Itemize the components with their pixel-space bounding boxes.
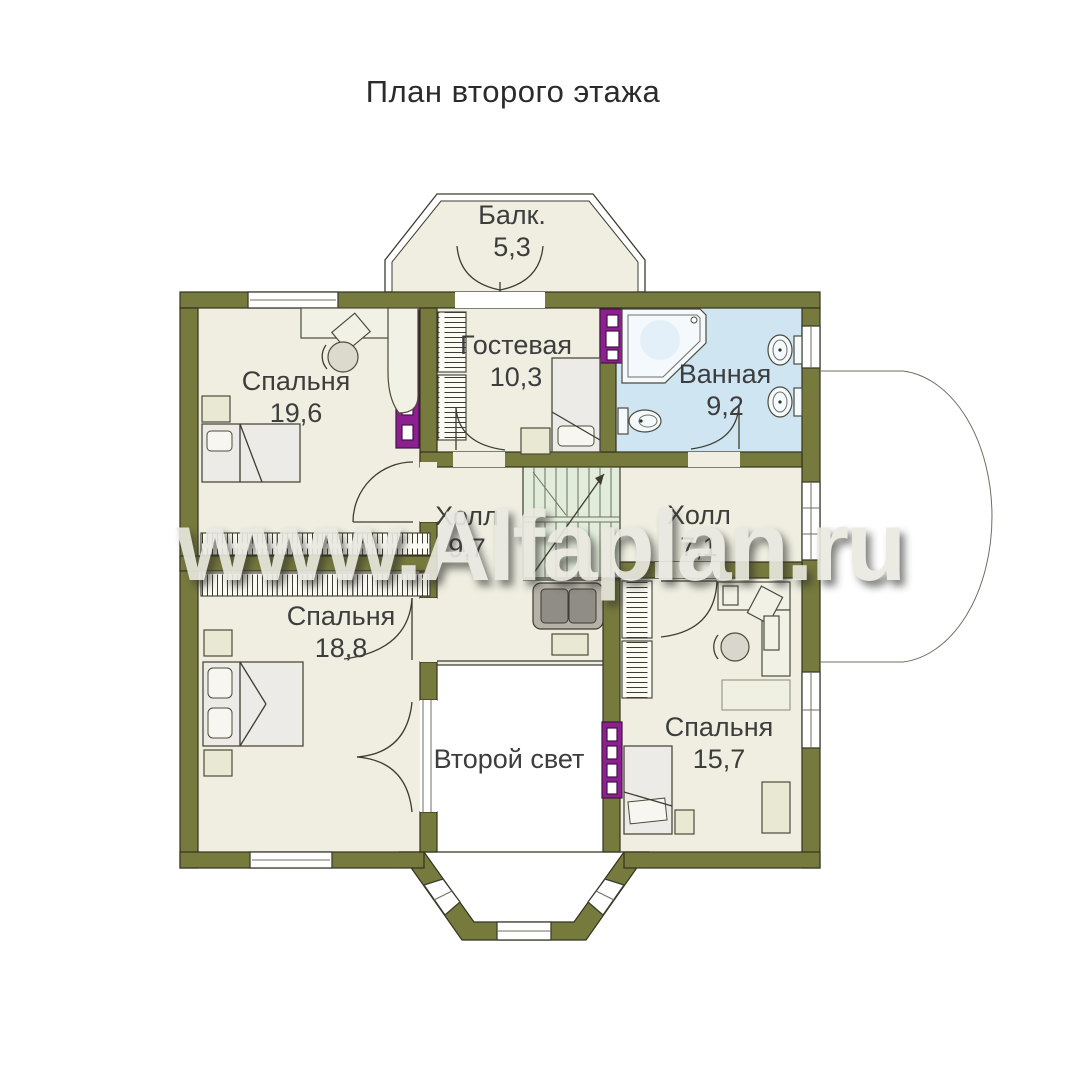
room-area: 5,3 bbox=[493, 232, 531, 264]
room-name: Спальня bbox=[287, 601, 396, 633]
room-label-bedroom1: Спальня 19,6 bbox=[242, 366, 351, 430]
watermark: www.Alfaplan.ru bbox=[177, 489, 904, 603]
room-name: Гостевая bbox=[460, 330, 572, 362]
room-label-bedroom3: Спальня 15,7 bbox=[665, 712, 774, 776]
page-title: План второго этажа bbox=[366, 74, 660, 110]
room-area: 10,3 bbox=[490, 362, 543, 394]
room-name: Второй свет bbox=[434, 744, 585, 776]
room-name: Спальня bbox=[242, 366, 351, 398]
room-label-guest-room: Гостевая 10,3 bbox=[460, 330, 572, 394]
room-area: 15,7 bbox=[693, 744, 746, 776]
room-area: 9,2 bbox=[706, 391, 744, 423]
room-name: Балк. bbox=[478, 200, 546, 232]
room-label-bathroom: Ванная 9,2 bbox=[679, 359, 771, 423]
room-label-bedroom2: Спальня 18,8 bbox=[287, 601, 396, 665]
room-name: Спальня bbox=[665, 712, 774, 744]
room-name: Ванная bbox=[679, 359, 771, 391]
room-area: 19,6 bbox=[270, 398, 323, 430]
room-area: 18,8 bbox=[315, 633, 368, 665]
room-label-second-light: Второй свет bbox=[434, 744, 585, 776]
room-label-balcony: Балк. 5,3 bbox=[478, 200, 546, 264]
floor-plan-page: План второго этажа bbox=[0, 0, 1080, 1080]
